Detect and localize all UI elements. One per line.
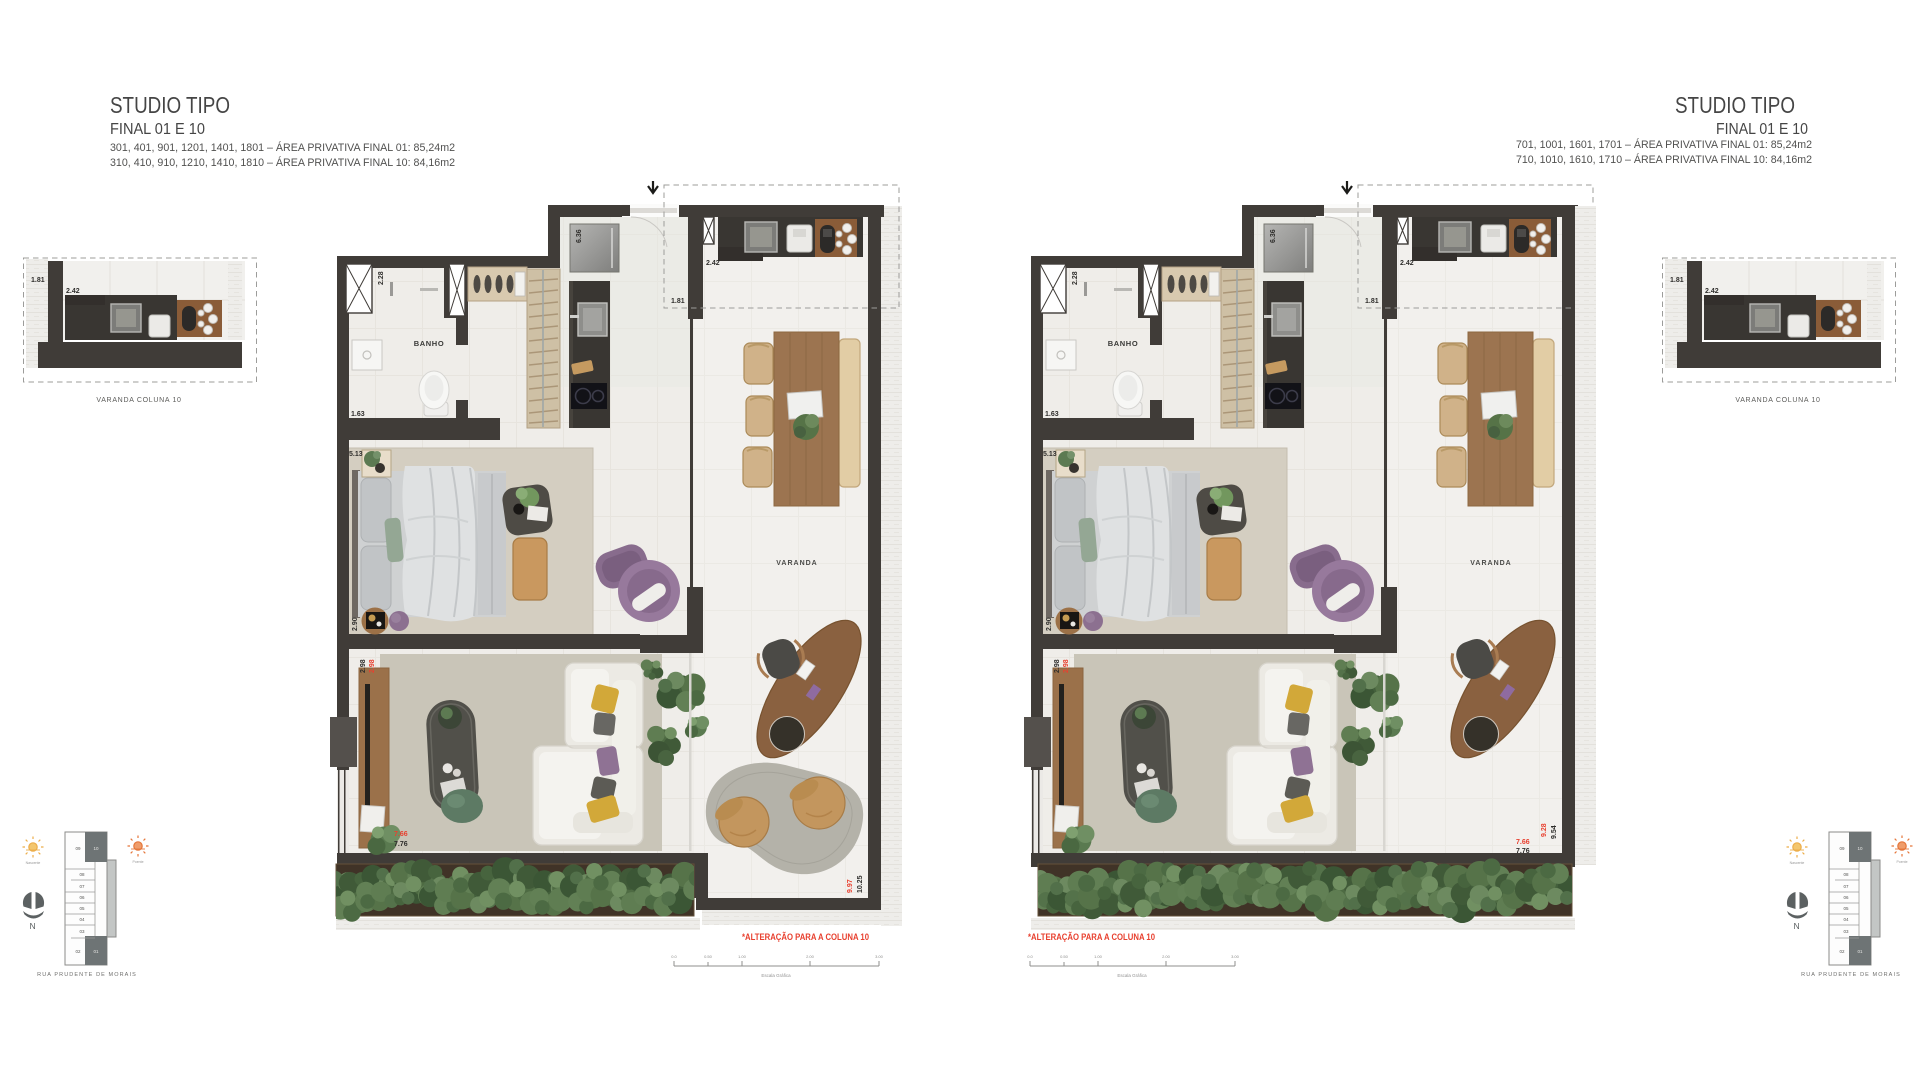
svg-text:09: 09	[75, 846, 81, 851]
svg-text:10: 10	[93, 846, 99, 851]
svg-text:*ALTERAÇÃO PARA A COLUNA 10: *ALTERAÇÃO PARA A COLUNA 10	[1028, 932, 1155, 942]
svg-text:7.66: 7.66	[1516, 839, 1530, 846]
svg-text:N: N	[30, 921, 36, 931]
svg-text:STUDIO TIPO: STUDIO TIPO	[1675, 92, 1795, 118]
svg-text:301, 401, 901, 1201, 1401, 180: 301, 401, 901, 1201, 1401, 1801 – ÁREA P…	[110, 141, 455, 154]
svg-text:10.25: 10.25	[857, 875, 864, 893]
svg-text:0.50: 0.50	[1060, 954, 1069, 959]
svg-text:02: 02	[75, 949, 81, 954]
svg-text:FINAL 01 E 10: FINAL 01 E 10	[110, 121, 205, 138]
svg-text:05: 05	[79, 906, 85, 911]
svg-text:701, 1001, 1601, 1701 – ÁREA P: 701, 1001, 1601, 1701 – ÁREA PRIVATIVA F…	[1516, 138, 1812, 151]
svg-text:Escala Gráfica: Escala Gráfica	[761, 973, 791, 978]
svg-text:RUA PRUDENTE DE MORAIS: RUA PRUDENTE DE MORAIS	[37, 972, 137, 978]
svg-text:1.81: 1.81	[31, 277, 45, 284]
svg-text:710, 1010, 1610, 1710 – ÁREA P: 710, 1010, 1610, 1710 – ÁREA PRIVATIVA F…	[1516, 153, 1812, 166]
svg-text:01: 01	[93, 949, 99, 954]
svg-text:04: 04	[79, 917, 85, 922]
svg-text:07: 07	[79, 884, 85, 889]
svg-text:0.50: 0.50	[704, 954, 713, 959]
svg-text:3.00: 3.00	[1231, 954, 1240, 959]
svg-text:7.76: 7.76	[1516, 848, 1530, 855]
svg-text:2.42: 2.42	[66, 288, 80, 295]
svg-text:9.28: 9.28	[1541, 823, 1548, 837]
svg-text:Escala Gráfica: Escala Gráfica	[1117, 973, 1147, 978]
svg-text:FINAL 01 E 10: FINAL 01 E 10	[1716, 121, 1808, 138]
svg-text:1.00: 1.00	[1094, 954, 1103, 959]
svg-text:9.54: 9.54	[1551, 825, 1558, 839]
svg-text:0.0: 0.0	[1027, 954, 1033, 959]
svg-text:0.0: 0.0	[671, 954, 677, 959]
svg-text:Poente: Poente	[132, 860, 143, 864]
svg-text:1.00: 1.00	[738, 954, 747, 959]
svg-text:Nascente: Nascente	[26, 861, 41, 865]
svg-text:STUDIO TIPO: STUDIO TIPO	[110, 92, 230, 118]
svg-text:*ALTERAÇÃO PARA A COLUNA 10: *ALTERAÇÃO PARA A COLUNA 10	[742, 932, 869, 942]
svg-text:310, 410, 910, 1210, 1410, 181: 310, 410, 910, 1210, 1410, 1810 – ÁREA P…	[110, 156, 455, 169]
svg-text:08: 08	[79, 872, 85, 877]
svg-text:VARANDA COLUNA 10: VARANDA COLUNA 10	[96, 397, 181, 404]
svg-text:06: 06	[79, 895, 85, 900]
svg-text:2.00: 2.00	[806, 954, 815, 959]
svg-text:7.66: 7.66	[394, 831, 408, 838]
svg-text:03: 03	[79, 929, 85, 934]
svg-text:3.00: 3.00	[875, 954, 884, 959]
svg-text:2.00: 2.00	[1162, 954, 1171, 959]
svg-text:9.97: 9.97	[847, 879, 854, 893]
svg-text:7.76: 7.76	[394, 841, 408, 848]
